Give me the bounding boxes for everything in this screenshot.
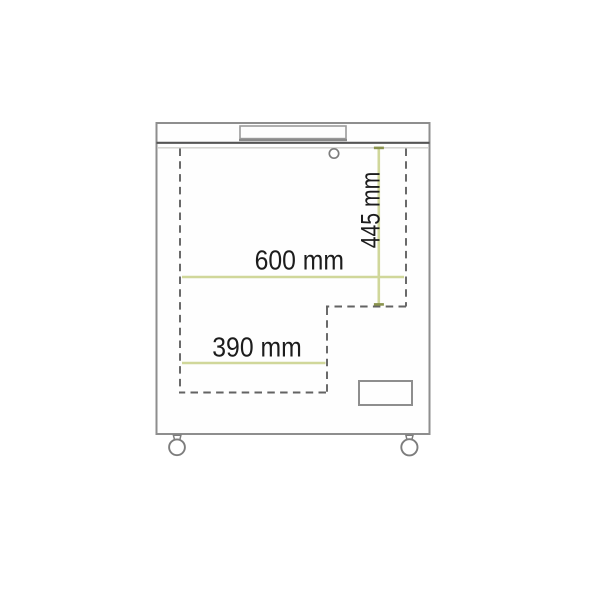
svg-text:390 mm: 390 mm xyxy=(212,331,301,363)
svg-text:600 mm: 600 mm xyxy=(255,244,344,276)
svg-text:445 mm: 445 mm xyxy=(356,172,386,249)
